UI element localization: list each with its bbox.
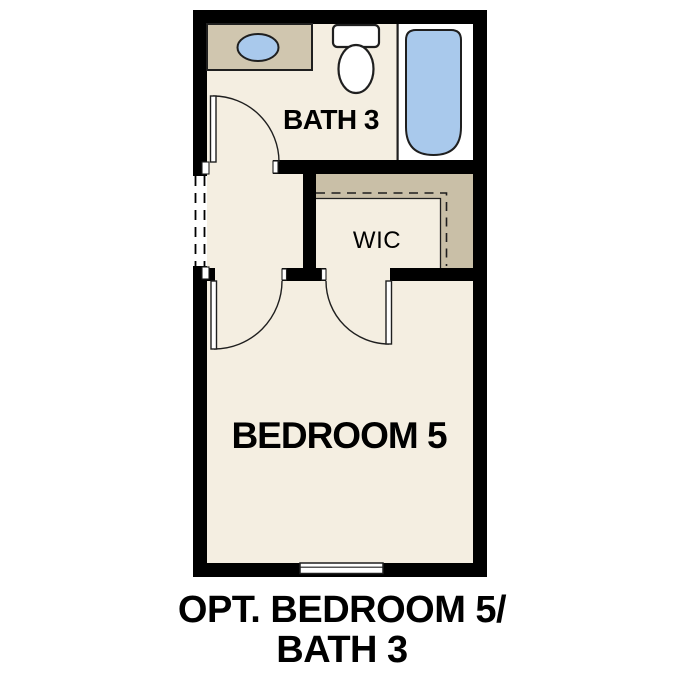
- room-label-bath: BATH 3: [283, 104, 379, 135]
- caption-line2: BATH 3: [276, 629, 407, 671]
- bathtub: [406, 30, 461, 155]
- bedroom-window: [300, 563, 383, 574]
- wall-right: [473, 10, 487, 577]
- toilet-bowl: [339, 45, 374, 93]
- bedroom-door-jamb: [282, 269, 287, 280]
- window: [300, 563, 383, 574]
- bedroom-door-leaf: [211, 281, 217, 349]
- hall-bottom-jamb: [202, 267, 209, 279]
- hall-opening-dashed-wall: [196, 176, 205, 266]
- bath-door-jamb: [273, 161, 278, 173]
- wic-door-leaf: [386, 281, 392, 344]
- wall-left-upper: [193, 10, 207, 176]
- wall-left-lower: [193, 266, 207, 577]
- wall-bedroom-top-mid: [282, 268, 326, 281]
- room-label-bedroom: BEDROOM 5: [231, 415, 447, 456]
- floorplan-canvas: BATH 3 WIC BEDROOM 5 OPT. BEDROOM 5/ BAT…: [0, 0, 687, 687]
- wall-bedroom-top-right: [390, 268, 487, 281]
- sink-basin: [238, 34, 279, 61]
- bath-door-leaf: [211, 96, 217, 162]
- floorplan-page: BATH 3 WIC BEDROOM 5 OPT. BEDROOM 5/ BAT…: [0, 0, 687, 687]
- wall-top: [193, 10, 487, 24]
- caption-line1: OPT. BEDROOM 5/: [178, 589, 507, 631]
- wall-wic-left: [303, 160, 316, 281]
- toilet-tank: [333, 25, 379, 47]
- hall-top-jamb: [202, 162, 209, 174]
- wic-door-jamb: [322, 269, 327, 280]
- bath-tub-partition-wall: [397, 24, 399, 160]
- room-label-wic: WIC: [353, 227, 401, 254]
